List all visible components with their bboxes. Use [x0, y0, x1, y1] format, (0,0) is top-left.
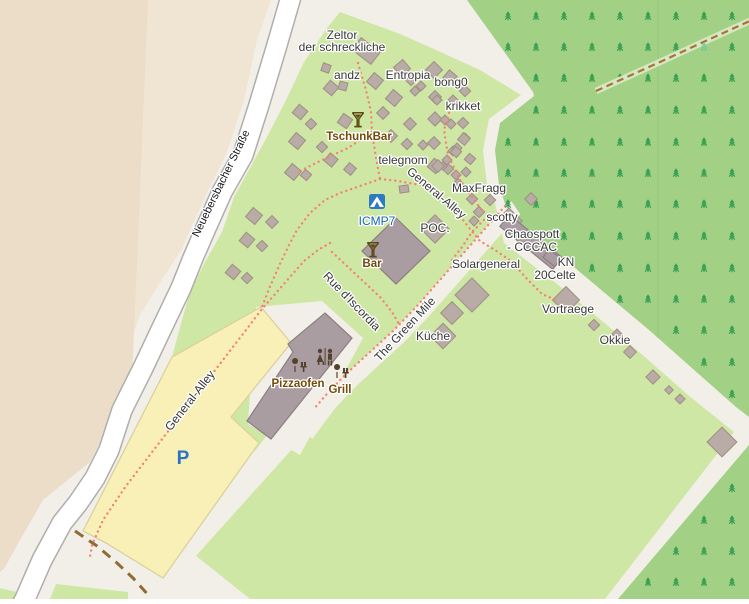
- svg-text:krikket: krikket: [446, 99, 481, 113]
- svg-text:20Celte: 20Celte: [534, 268, 576, 282]
- svg-text:- CCCAC: - CCCAC: [507, 240, 557, 254]
- svg-text:KN: KN: [558, 255, 575, 269]
- svg-text:Küche: Küche: [416, 329, 450, 343]
- svg-text:Bar: Bar: [362, 258, 382, 270]
- svg-text:POC.: POC.: [420, 221, 449, 235]
- svg-text:Pizzaofen: Pizzaofen: [271, 378, 324, 390]
- svg-text:Grill: Grill: [328, 384, 351, 396]
- svg-text:ICMP7: ICMP7: [359, 214, 396, 228]
- svg-text:Vortraege: Vortraege: [542, 302, 594, 316]
- svg-text:P: P: [177, 448, 190, 469]
- svg-text:der schreckliche: der schreckliche: [299, 40, 386, 54]
- svg-text:Chaospott: Chaospott: [505, 227, 560, 241]
- svg-text:andz: andz: [334, 68, 360, 82]
- svg-text:telegnom: telegnom: [378, 153, 427, 167]
- svg-text:Okkie: Okkie: [600, 333, 631, 347]
- svg-text:bong0: bong0: [434, 75, 468, 89]
- svg-text:MaxFragg: MaxFragg: [452, 181, 506, 195]
- svg-text:TschunkBar: TschunkBar: [326, 131, 392, 143]
- svg-text:Entropia: Entropia: [386, 68, 431, 82]
- svg-text:Solargeneral: Solargeneral: [452, 257, 520, 271]
- svg-text:scotty: scotty: [486, 210, 517, 224]
